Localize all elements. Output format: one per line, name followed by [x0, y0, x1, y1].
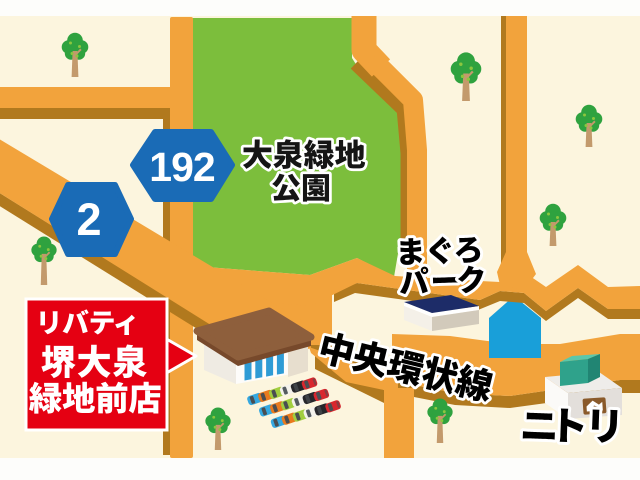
svg-text:192: 192	[149, 144, 215, 190]
svg-text:2: 2	[76, 194, 101, 245]
